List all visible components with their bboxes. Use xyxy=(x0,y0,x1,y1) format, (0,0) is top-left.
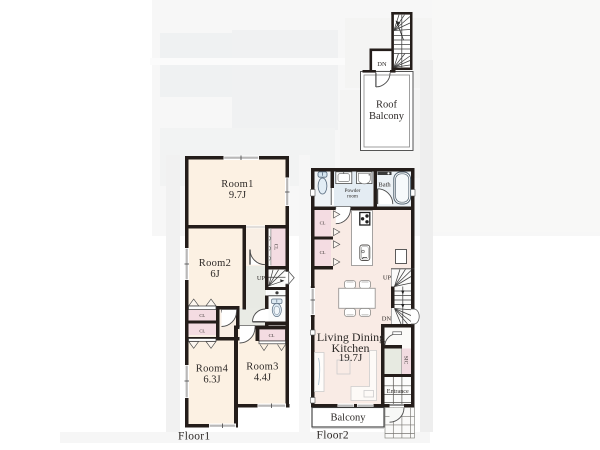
svg-text:4.4J: 4.4J xyxy=(254,373,271,384)
svg-text:CL: CL xyxy=(320,221,326,226)
svg-text:Roof: Roof xyxy=(376,100,398,111)
svg-text:Bath: Bath xyxy=(378,182,391,189)
svg-text:Room1: Room1 xyxy=(221,179,253,190)
svg-text:Balcony: Balcony xyxy=(331,413,367,424)
svg-text:UP: UP xyxy=(383,275,392,282)
svg-text:CL: CL xyxy=(199,313,205,318)
svg-text:Room3: Room3 xyxy=(246,362,278,373)
svg-text:CL: CL xyxy=(320,250,326,255)
svg-text:SIC: SIC xyxy=(402,356,408,365)
svg-text:Room4: Room4 xyxy=(196,364,229,375)
svg-text:9.7J: 9.7J xyxy=(229,190,246,201)
svg-text:CL: CL xyxy=(273,244,278,250)
svg-text:19.7J: 19.7J xyxy=(339,352,363,364)
svg-text:6J: 6J xyxy=(210,269,219,280)
svg-text:Entrance: Entrance xyxy=(387,388,409,395)
svg-text:DN: DN xyxy=(377,61,387,68)
svg-text:Balcony: Balcony xyxy=(369,111,405,122)
svg-text:room: room xyxy=(347,194,358,200)
svg-text:Room2: Room2 xyxy=(199,258,231,269)
svg-text:6.3J: 6.3J xyxy=(203,375,220,386)
svg-text:UP: UP xyxy=(257,275,266,282)
svg-text:CL: CL xyxy=(199,329,205,334)
svg-text:Floor2: Floor2 xyxy=(317,430,349,442)
svg-text:CL: CL xyxy=(269,333,275,338)
svg-text:Floor1: Floor1 xyxy=(178,431,210,443)
svg-text:DN: DN xyxy=(382,316,392,323)
